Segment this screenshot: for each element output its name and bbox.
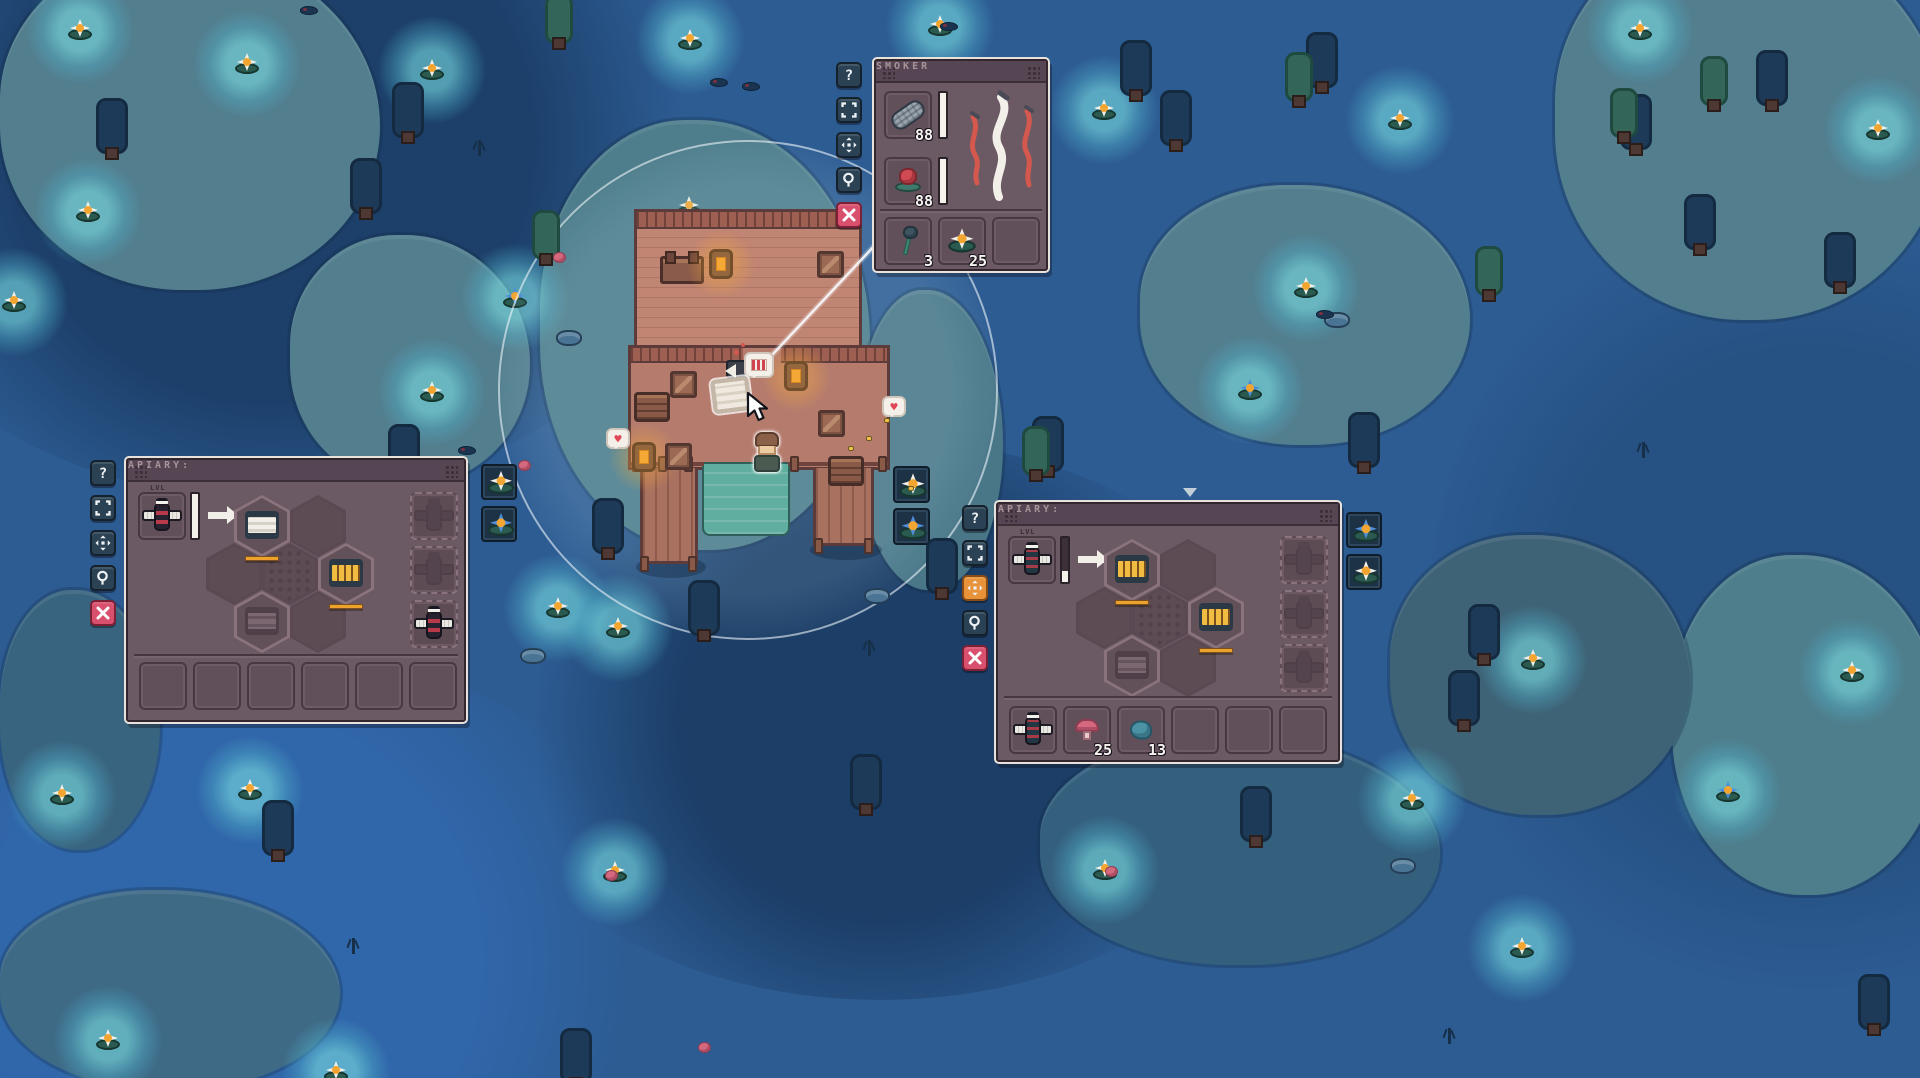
dark-tree xyxy=(560,1028,592,1078)
mushroom-stem xyxy=(1083,731,1091,740)
inventory-slot[interactable] xyxy=(139,662,187,710)
inspect-button[interactable] xyxy=(962,610,988,636)
lily-core xyxy=(246,784,254,792)
white-lily-flower-icon xyxy=(1,291,27,313)
slot-item xyxy=(895,226,921,256)
frame-gray-item xyxy=(1115,651,1149,679)
bee-icon xyxy=(1013,712,1053,748)
move-icon xyxy=(838,134,860,156)
speech-bubble-comb xyxy=(744,352,774,378)
teal-tree xyxy=(1022,426,1050,476)
inspect-icon xyxy=(838,169,860,191)
apiary-right-flower-tiles xyxy=(1346,512,1386,602)
white-lily-flower-icon xyxy=(1387,109,1413,131)
reeds xyxy=(1448,1028,1451,1044)
bee-body xyxy=(1025,717,1041,745)
white-lily-flower-icon xyxy=(1627,19,1653,41)
water-bird xyxy=(940,22,958,31)
water-bird xyxy=(742,82,760,91)
beehive[interactable] xyxy=(828,456,864,486)
blue-lotus-flower-icon xyxy=(1715,781,1741,803)
dark-tree xyxy=(850,754,882,810)
lily-core xyxy=(1848,666,1856,674)
rock xyxy=(556,330,582,346)
white-lily-flower-icon xyxy=(947,228,977,253)
white-lily-flower-icon xyxy=(95,1029,121,1051)
slot-item xyxy=(1013,712,1053,748)
smoker-output-slots: 325 xyxy=(876,61,1046,269)
blue-lotus-flower-icon xyxy=(1352,519,1381,543)
lily-glow xyxy=(7,740,117,850)
smoker-ember xyxy=(734,350,739,355)
pink-flower xyxy=(553,252,566,263)
move-button[interactable] xyxy=(962,575,988,601)
teal-tree xyxy=(1610,88,1638,138)
lily-core xyxy=(1100,104,1108,112)
apiary-right-panel-buttons: ? xyxy=(962,505,988,685)
player-face xyxy=(758,446,776,455)
blue-lotus-tile[interactable] xyxy=(893,508,930,545)
white-lily-flower-icon xyxy=(487,471,516,495)
dark-tree xyxy=(1240,786,1272,842)
help-button[interactable]: ? xyxy=(836,62,862,88)
pier-post xyxy=(814,538,823,554)
pink-flower xyxy=(1105,866,1118,877)
inspect-button[interactable] xyxy=(90,565,116,591)
blue-lotus-tile[interactable] xyxy=(481,506,517,542)
flying-bee xyxy=(908,486,914,491)
pink-flower xyxy=(698,1042,711,1053)
item-count: 88 xyxy=(915,126,933,144)
move-button[interactable] xyxy=(90,530,116,556)
dark-tree xyxy=(1756,50,1788,106)
white-lily-tile[interactable] xyxy=(481,464,517,500)
resize-button[interactable] xyxy=(90,495,116,521)
bee-head xyxy=(1027,712,1039,720)
dark-tree xyxy=(1824,232,1856,288)
smoker-output-slot[interactable] xyxy=(992,217,1040,265)
lily-core xyxy=(686,34,694,42)
close-button[interactable] xyxy=(962,645,988,671)
flying-bee xyxy=(866,436,872,441)
crate[interactable] xyxy=(818,410,845,437)
water-bird xyxy=(300,6,318,15)
item-count: 88 xyxy=(915,192,933,210)
item-count: 13 xyxy=(1148,741,1166,759)
water-bird xyxy=(1316,310,1334,319)
lily-glow xyxy=(1195,335,1305,445)
inventory-slot[interactable]: 25 xyxy=(1063,706,1111,754)
inventory-slot[interactable] xyxy=(1279,706,1327,754)
smoker-panel-buttons: ? xyxy=(836,62,862,242)
white-lily-flower-icon xyxy=(1865,119,1891,141)
white-lily-flower-icon xyxy=(237,779,263,801)
rock xyxy=(1390,858,1416,874)
inventory-slot[interactable] xyxy=(355,662,403,710)
lily-core xyxy=(243,58,251,66)
lily-core xyxy=(1246,384,1254,392)
smoker-funnel xyxy=(718,364,736,378)
lily-core xyxy=(10,296,18,304)
lily-glow xyxy=(192,9,302,119)
inventory-slot[interactable] xyxy=(1009,706,1057,754)
pier-post xyxy=(640,556,649,572)
comb-progress-bar xyxy=(245,556,279,561)
beehive[interactable] xyxy=(634,392,670,422)
frame-yellow-item xyxy=(329,559,363,587)
inventory-slot[interactable] xyxy=(301,662,349,710)
crate[interactable] xyxy=(817,251,844,278)
apiary-left-flower-tiles xyxy=(481,464,521,554)
smoker-ember xyxy=(741,343,745,347)
player-hair xyxy=(755,432,779,447)
dark-tree xyxy=(1448,670,1480,726)
water-bird xyxy=(458,446,476,455)
lily-core xyxy=(1362,566,1371,575)
reeds xyxy=(1642,442,1645,458)
frame-yellow-item xyxy=(1115,555,1149,583)
blue-lotus-tile[interactable] xyxy=(1346,512,1382,548)
lantern[interactable] xyxy=(784,361,808,391)
apiary-inventory-row: 2513 xyxy=(998,504,1338,760)
white-lily-flower-icon xyxy=(677,29,703,51)
crate[interactable] xyxy=(665,443,692,470)
lily-glow xyxy=(33,157,143,267)
lily-core xyxy=(554,602,562,610)
white-lily-flower-icon xyxy=(1399,789,1425,811)
move-icon xyxy=(964,577,986,599)
pier-post xyxy=(864,538,873,554)
item-count: 3 xyxy=(924,252,933,270)
fence-post xyxy=(878,456,887,472)
help-icon: ? xyxy=(92,462,114,484)
lily-core xyxy=(58,789,66,797)
item-pink-mushroom xyxy=(1075,719,1099,741)
svg-text:?: ? xyxy=(845,68,853,84)
lily-core xyxy=(1636,24,1644,32)
apiary-inventory-row xyxy=(128,460,464,720)
apiary-right-panel: APIARY: LVL 2513 xyxy=(996,502,1340,762)
smoker-output-slot[interactable]: 25 xyxy=(938,217,986,265)
slot-item xyxy=(1130,721,1152,740)
blue-lotus-flower-icon xyxy=(1237,379,1263,401)
frame-yellow-item xyxy=(1199,603,1233,631)
comb-progress-bar xyxy=(329,604,363,609)
lily-core xyxy=(1362,524,1371,533)
lily-core xyxy=(1724,786,1732,794)
white-lily-flower-icon xyxy=(419,59,445,81)
teal-tree xyxy=(1700,56,1728,106)
dark-tree xyxy=(1120,40,1152,96)
lily-glow xyxy=(0,247,69,357)
lily-core xyxy=(908,521,917,530)
move-button[interactable] xyxy=(836,132,862,158)
help-button[interactable]: ? xyxy=(90,460,116,486)
pink-flower xyxy=(605,870,618,881)
item-stem xyxy=(903,238,911,255)
lantern[interactable] xyxy=(632,442,656,472)
close-icon xyxy=(838,204,860,226)
white-lily-flower-icon xyxy=(1839,661,1865,683)
speech-bubble-heart: ♥ xyxy=(882,396,906,417)
rock xyxy=(864,588,890,604)
apiary-left-panel: APIARY: LVL xyxy=(126,458,466,722)
frame-gray-item xyxy=(245,607,279,635)
help-button[interactable]: ? xyxy=(962,505,988,531)
resize-icon xyxy=(964,542,986,564)
inspect-button[interactable] xyxy=(836,167,862,193)
comb-progress-bar xyxy=(1115,600,1149,605)
player-character xyxy=(752,432,782,478)
item-bee-dark xyxy=(1013,712,1053,748)
close-button[interactable] xyxy=(90,600,116,626)
smoker-panel: SMOKER 8888 325 xyxy=(874,59,1048,271)
inspect-icon xyxy=(92,567,114,589)
resize-button[interactable] xyxy=(962,540,988,566)
help-icon: ? xyxy=(964,507,986,529)
reeds xyxy=(352,938,355,954)
house-top-wall xyxy=(637,212,859,229)
dark-tree xyxy=(1348,412,1380,468)
smoker-output-slot[interactable]: 3 xyxy=(884,217,932,265)
white-lily-flower-icon xyxy=(1509,937,1535,959)
inspect-icon xyxy=(964,612,986,634)
lily-core xyxy=(332,1066,340,1074)
crate[interactable] xyxy=(670,371,697,398)
reeds xyxy=(868,640,871,656)
slot-item xyxy=(1075,719,1099,741)
white-lily-flower-icon xyxy=(1520,649,1546,671)
lily-core xyxy=(104,1034,112,1042)
lily-glow xyxy=(1345,65,1455,175)
lily-glow xyxy=(1357,745,1467,855)
teal-tree xyxy=(545,0,573,44)
item-white-lily xyxy=(949,230,975,252)
lily-core xyxy=(1529,654,1537,662)
speech-bubble-heart: ♥ xyxy=(606,428,630,449)
dark-tree xyxy=(96,98,128,154)
fence-post xyxy=(790,456,799,472)
white-lily-tile[interactable] xyxy=(1346,554,1382,590)
svg-text:?: ? xyxy=(971,511,979,527)
lily-glow xyxy=(1797,617,1907,727)
dark-tree xyxy=(926,538,958,594)
white-lily-flower-icon xyxy=(1091,99,1117,121)
dark-tree xyxy=(592,498,624,554)
pier-post xyxy=(688,556,697,572)
item-count: 25 xyxy=(1094,741,1112,759)
lily-core xyxy=(84,206,92,214)
dark-tree xyxy=(262,800,294,856)
lily-core xyxy=(428,64,436,72)
lily-core xyxy=(497,476,506,485)
inventory-slot[interactable]: 13 xyxy=(1117,706,1165,754)
dark-tree xyxy=(1858,974,1890,1030)
item-teal-cap xyxy=(1130,721,1152,740)
apiary-left-panel-buttons: ? xyxy=(90,460,116,640)
close-icon xyxy=(92,602,114,624)
blue-lotus-flower-icon xyxy=(487,513,516,537)
white-lily-flower-icon xyxy=(419,381,445,403)
white-lily-flower-icon xyxy=(1293,277,1319,299)
white-lily-flower-icon xyxy=(49,784,75,806)
lily-core xyxy=(957,234,966,243)
frame-white-item xyxy=(245,511,279,539)
lily-core xyxy=(1302,282,1310,290)
lily-core xyxy=(76,24,84,32)
resize-icon xyxy=(92,497,114,519)
red-comb-icon xyxy=(751,359,767,371)
lily-glow xyxy=(1467,893,1577,1003)
inventory-slot[interactable] xyxy=(1225,706,1273,754)
flying-bee xyxy=(848,446,854,451)
white-lily-flower-icon xyxy=(1352,561,1381,585)
lily-core xyxy=(614,622,622,630)
lily-core xyxy=(497,518,506,527)
water-bird xyxy=(710,78,728,87)
lily-core xyxy=(1518,942,1526,950)
slot-item xyxy=(949,230,975,252)
dark-tree xyxy=(688,580,720,636)
resize-button[interactable] xyxy=(836,97,862,123)
white-lily-flower-icon xyxy=(234,53,260,75)
lily-core xyxy=(1408,794,1416,802)
dark-tree xyxy=(1684,194,1716,250)
game-viewport: ♥♥ xyxy=(0,0,1920,1078)
inventory-slot[interactable] xyxy=(1171,706,1219,754)
move-icon xyxy=(92,532,114,554)
white-lily-flower-icon xyxy=(75,201,101,223)
lily-core xyxy=(1874,124,1882,132)
dark-tree xyxy=(1468,604,1500,660)
white-lily-flower-icon xyxy=(605,617,631,639)
player-torso xyxy=(754,455,780,472)
white-lily-flower-icon xyxy=(67,19,93,41)
white-lily-tile[interactable] xyxy=(893,466,930,503)
rock xyxy=(520,648,546,664)
item-bloom xyxy=(903,226,918,239)
comb-progress-bar xyxy=(1199,648,1233,653)
close-icon xyxy=(964,647,986,669)
help-icon: ? xyxy=(838,64,860,86)
white-lily-flower-icon xyxy=(323,1061,349,1078)
lily-core xyxy=(428,386,436,394)
lantern-flame xyxy=(639,450,649,464)
lily-core xyxy=(1396,114,1404,122)
inventory-slot[interactable] xyxy=(193,662,241,710)
lily-glow xyxy=(635,0,745,95)
teal-tree xyxy=(1475,246,1503,296)
close-button[interactable] xyxy=(836,202,862,228)
lantern-flame xyxy=(791,369,801,383)
dark-tree xyxy=(1160,90,1192,146)
dark-tree xyxy=(350,158,382,214)
resize-icon xyxy=(838,99,860,121)
reeds xyxy=(478,140,481,156)
lantern-flame xyxy=(716,257,726,271)
lily-glow xyxy=(1673,737,1783,847)
mouse-cursor xyxy=(746,392,772,424)
svg-text:?: ? xyxy=(99,466,107,482)
dark-tree xyxy=(392,82,424,138)
item-stem-flower xyxy=(895,226,921,256)
inventory-slot[interactable] xyxy=(409,662,457,710)
blue-lotus-flower-icon xyxy=(898,515,928,540)
lantern[interactable] xyxy=(709,249,733,279)
teal-tree xyxy=(1285,52,1313,102)
item-count: 25 xyxy=(969,252,987,270)
inventory-slot[interactable] xyxy=(247,662,295,710)
